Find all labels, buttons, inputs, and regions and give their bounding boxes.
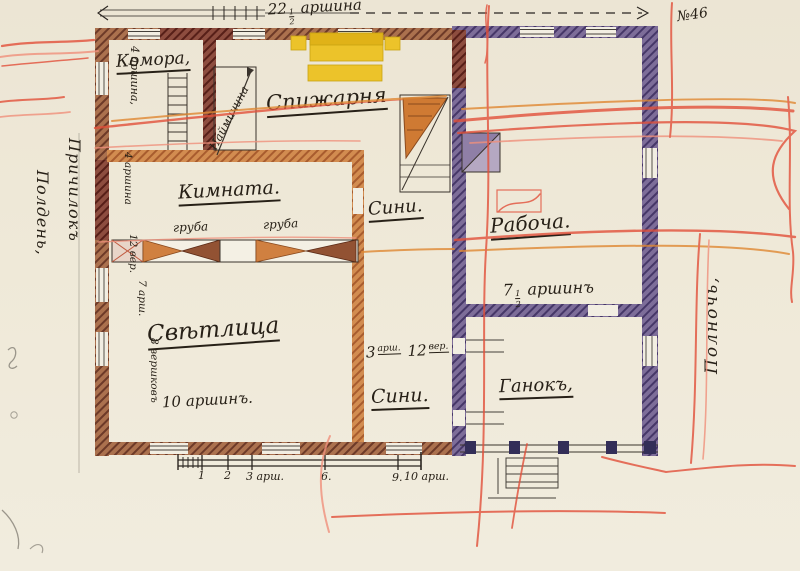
dim-wall-seg-3: 7 арш. [136,280,147,316]
room-label-ganok: Ганокъ, [499,376,573,397]
dim-siny: 3арш. 12вер. [366,342,451,362]
furniture-blocks [291,33,400,81]
room-label-siny-upper: Сини. [367,197,423,220]
staircase-icon [400,95,450,192]
scale-label-9: 9. [392,472,403,484]
ladder-stair-icon [168,73,187,150]
stove-label-left: груба [173,220,209,234]
porch-colonnade [460,441,658,454]
margin-label-north: Полночь, [704,275,722,374]
corner-stove-icon [462,133,500,172]
room-label-komora: Комора, [116,50,191,72]
room-label-siny-lower: Сини. [371,386,429,408]
dim-wall-seg-1: 4 аршина [122,152,133,205]
scale-label-1: 1 [198,470,205,482]
scale-label-10: 10 арш. [404,471,449,483]
scale-label-3: 3 арш. [246,471,284,483]
top-dimension-line [98,6,648,20]
margin-label-south: Полдень, [33,170,50,256]
room-label-kimnata: Кимната. [178,178,281,203]
floor-plan-drawing [0,0,800,571]
margin-label-prychilok: Причилокъ [65,138,82,242]
paper-sheet: №46 2212 аршина Комора, 4 аршина, Спижар… [0,0,800,571]
scale-label-2: 2 [224,470,231,482]
room-label-rabocha: Рабоча. [489,210,571,237]
porch-steps [488,458,558,498]
dim-komora-height: 4 аршина, [128,46,140,105]
scale-label-6: 6. [321,471,332,483]
dim-wall-seg-2: 12 вер. [127,234,138,273]
dim-wall-seg-4: 8 вершковъ [148,338,159,403]
dim-rabocha: 712 аршинъ [503,279,595,308]
stove-band [112,240,358,262]
stove-label-right: груба [263,217,299,231]
